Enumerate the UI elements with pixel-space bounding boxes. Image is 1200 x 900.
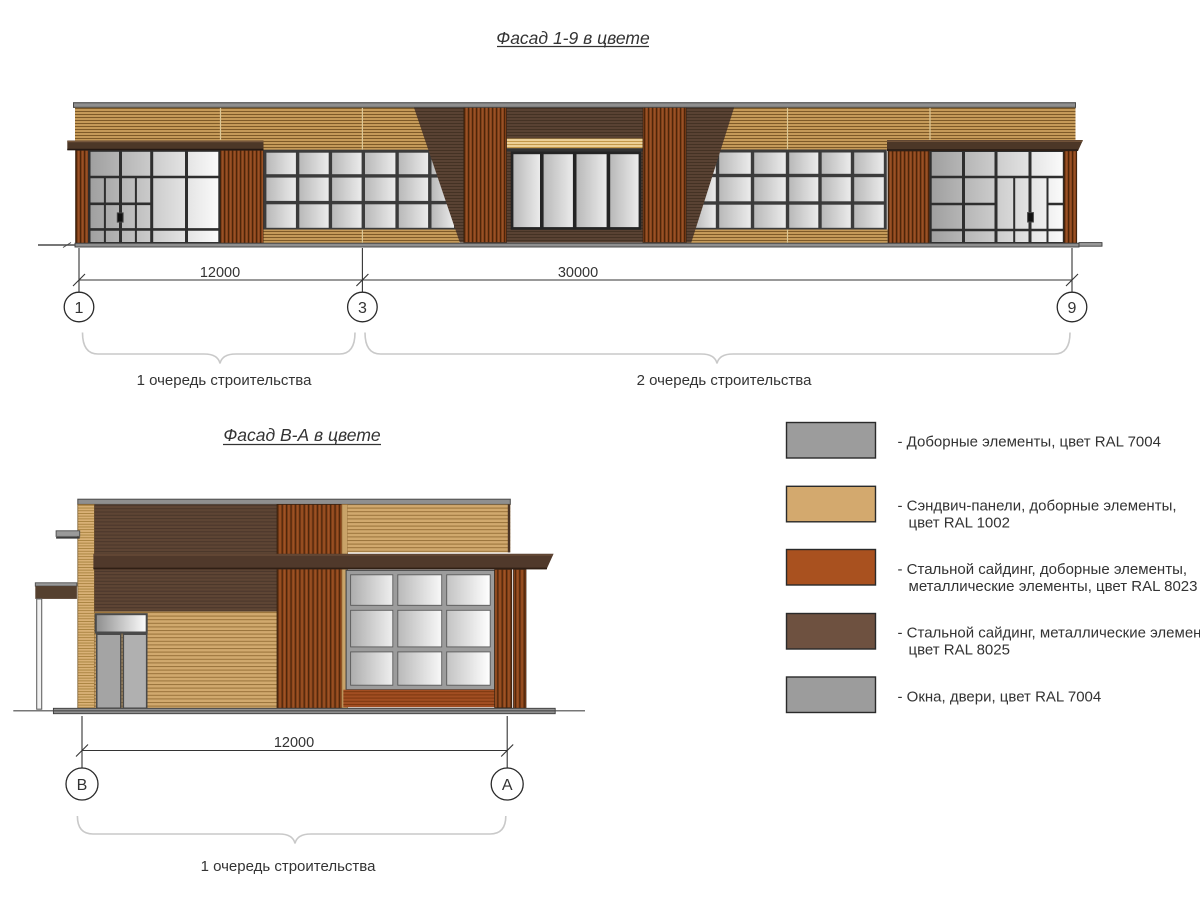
svg-text:цвет RAL 1002: цвет RAL 1002	[909, 515, 1010, 532]
svg-text:1 очередь строительства: 1 очередь строительства	[201, 858, 376, 875]
svg-text:цвет RAL 8025: цвет RAL 8025	[909, 642, 1010, 659]
svg-text:2 очередь строительства: 2 очередь строительства	[637, 372, 812, 389]
svg-text:12000: 12000	[200, 265, 240, 281]
svg-text:1 очередь строительства: 1 очередь строительства	[137, 372, 312, 389]
svg-text:металлические элементы, цвет R: металлические элементы, цвет RAL 8023	[909, 578, 1198, 595]
svg-text:12000: 12000	[274, 735, 314, 751]
svg-text:- Стальной сайдинг, металличес: - Стальной сайдинг, металлические элемен…	[898, 625, 1200, 642]
svg-text:1: 1	[75, 300, 84, 317]
svg-text:- Доборные элементы, цвет RAL: - Доборные элементы, цвет RAL 7004	[898, 434, 1161, 451]
svg-text:9: 9	[1068, 300, 1077, 317]
svg-text:- Стальной сайдинг, доборные э: - Стальной сайдинг, доборные элементы,	[898, 561, 1188, 578]
svg-text:А: А	[502, 777, 513, 794]
svg-text:30000: 30000	[558, 265, 598, 281]
svg-text:- Сэндвич-панели, доборные эле: - Сэндвич-панели, доборные элементы,	[898, 498, 1177, 515]
svg-text:Фасад 1-9 в цвете: Фасад 1-9 в цвете	[496, 28, 650, 48]
svg-text:Фасад В-А в цвете: Фасад В-А в цвете	[223, 425, 381, 445]
svg-text:В: В	[77, 777, 88, 794]
svg-text:- Окна, двери, цвет RAL 7004: - Окна, двери, цвет RAL 7004	[898, 689, 1102, 706]
svg-text:3: 3	[358, 300, 367, 317]
